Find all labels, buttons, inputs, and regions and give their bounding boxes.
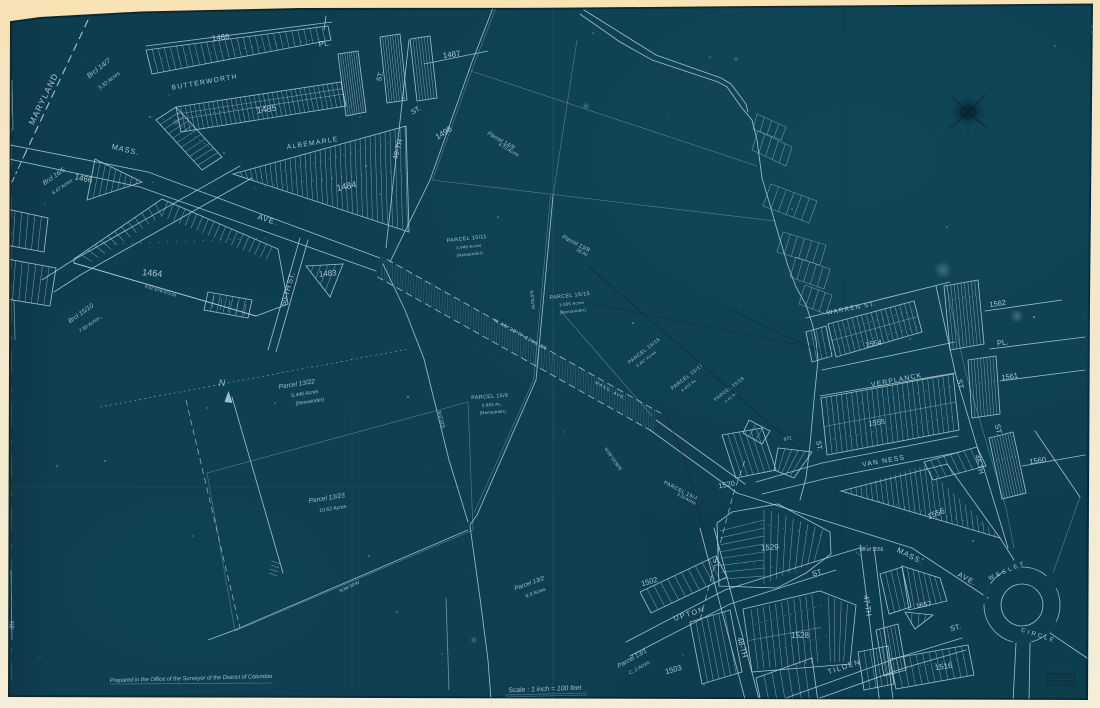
svg-text:1528: 1528 — [791, 631, 809, 640]
svg-text:1529: 1529 — [761, 543, 780, 553]
svg-text:1464: 1464 — [142, 267, 163, 279]
svg-text:PL.: PL. — [996, 337, 1008, 347]
svg-text:PL.: PL. — [318, 38, 331, 49]
svg-text:1483: 1483 — [319, 268, 338, 279]
svg-text:N: N — [219, 378, 226, 388]
svg-text:3½: 3½ — [9, 621, 16, 629]
